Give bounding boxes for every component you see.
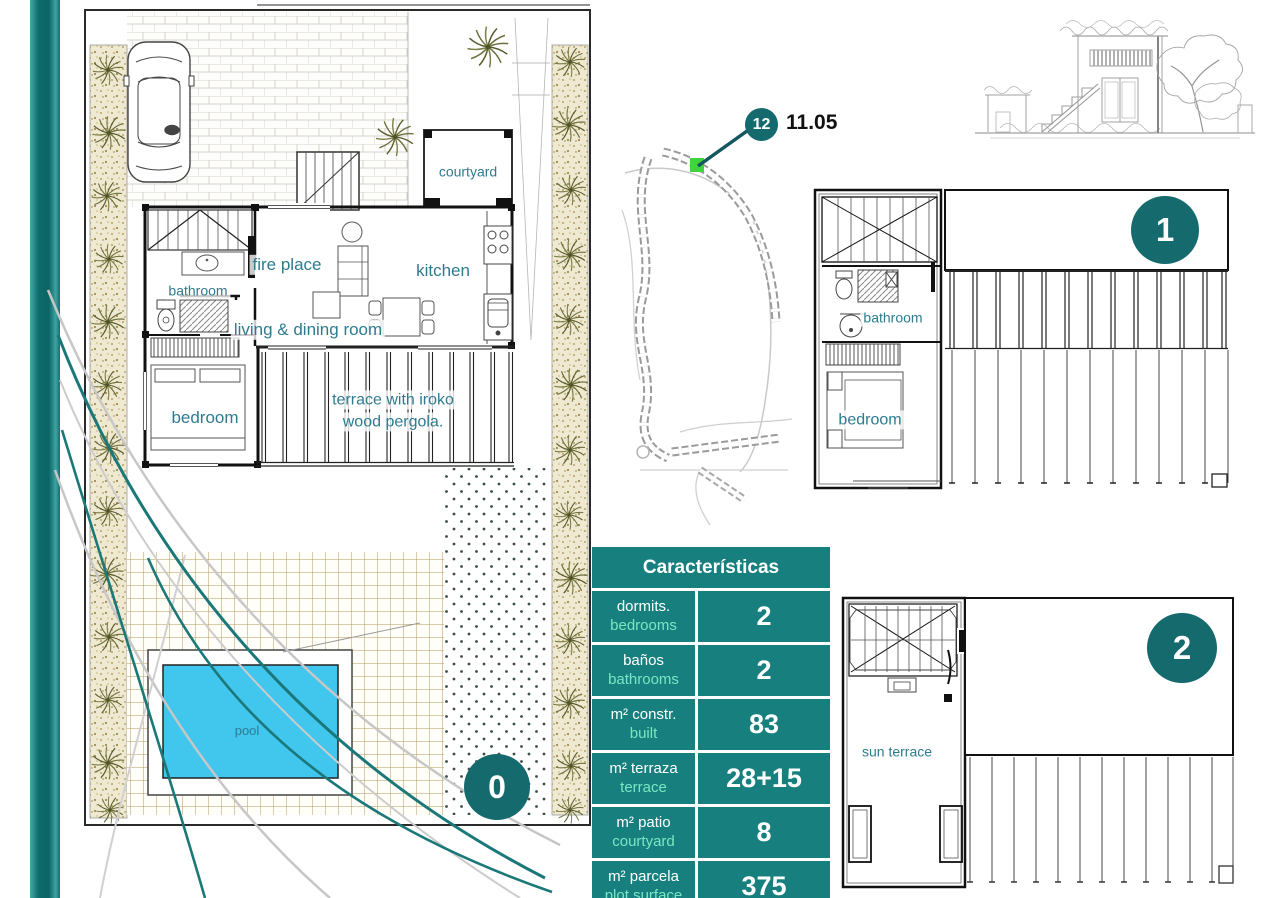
- plot-plan: [85, 5, 590, 825]
- row-value: 28+15: [698, 753, 830, 804]
- table-row-bedrooms: dormits.bedrooms 2: [592, 591, 830, 642]
- row-label-en: bathrooms: [608, 671, 679, 690]
- marker-leader-line: [698, 131, 747, 166]
- plot-chain: [639, 152, 780, 500]
- row-label-es: m² terraza: [609, 760, 677, 779]
- plot-number-badge: 12: [745, 108, 778, 141]
- row-label-es: m² constr.: [611, 706, 677, 725]
- house-sketch: [975, 21, 1255, 139]
- floor-badge-0: 0: [464, 754, 530, 820]
- row-label-es: dormits.: [617, 598, 670, 617]
- row-label-es: m² parcela: [608, 868, 679, 887]
- floor1-pergola: [945, 271, 1228, 487]
- row-label-en: built: [630, 725, 658, 744]
- label-terrace-line1: terrace with iroko: [329, 390, 457, 409]
- sink-icon: [484, 294, 512, 340]
- shower-icon: [180, 300, 228, 332]
- label-living-dining: living & dining room: [231, 320, 385, 340]
- row-value: 8: [698, 807, 830, 858]
- row-value: 375: [698, 861, 830, 898]
- site-location-map: [622, 131, 792, 525]
- label-bedroom-ground: bedroom: [168, 408, 241, 428]
- table-title: Características: [592, 547, 830, 588]
- interior-stairs: [148, 210, 252, 250]
- label-sun-terrace: sun terrace: [859, 744, 935, 761]
- characteristics-table: Características dormits.bedrooms 2 baños…: [592, 547, 830, 898]
- table-row-built: m² constr.built 83: [592, 699, 830, 750]
- sofa-icon: [338, 246, 368, 296]
- label-bedroom-floor1: bedroom: [835, 410, 904, 429]
- label-pool: pool: [232, 723, 263, 739]
- closet-icon: [151, 338, 239, 357]
- table-row-plot-surface: m² parcelaplot surface 375: [592, 861, 830, 898]
- row-label-en: bedrooms: [610, 617, 677, 636]
- floor-badge-2: 2: [1147, 613, 1217, 683]
- car-icon: [124, 42, 194, 182]
- stove-icon: [484, 226, 512, 264]
- label-fire-place: fire place: [250, 255, 325, 275]
- row-label-en: plot surface: [605, 887, 683, 898]
- brochure-page: courtyard fire place bathroom kitchen li…: [0, 0, 1274, 898]
- label-bathroom-ground: bathroom: [165, 283, 230, 300]
- table-row-bathrooms: bañosbathrooms 2: [592, 645, 830, 696]
- floor2-pergola: [967, 757, 1233, 883]
- side-table-icon: [342, 222, 362, 242]
- label-courtyard: courtyard: [436, 164, 500, 181]
- label-kitchen: kitchen: [413, 261, 473, 281]
- row-label-en: terrace: [620, 779, 667, 798]
- armchair-icon: [313, 292, 340, 318]
- label-bathroom-floor1: bathroom: [860, 310, 925, 327]
- floor-badge-1: 1: [1131, 196, 1199, 264]
- row-value: 2: [698, 645, 830, 696]
- table-row-terrace: m² terrazaterrace 28+15: [592, 753, 830, 804]
- row-label-es: baños: [623, 652, 664, 671]
- floor1-closet: [826, 344, 900, 365]
- label-terrace-line2: wood pergola.: [340, 412, 447, 431]
- row-value: 83: [698, 699, 830, 750]
- row-label-es: m² patio: [616, 814, 670, 833]
- row-value: 2: [698, 591, 830, 642]
- table-row-courtyard: m² patiocourtyard 8: [592, 807, 830, 858]
- exterior-stairs: [297, 152, 359, 210]
- row-label-en: courtyard: [612, 833, 675, 852]
- plot-price-label: 11.05: [786, 111, 837, 135]
